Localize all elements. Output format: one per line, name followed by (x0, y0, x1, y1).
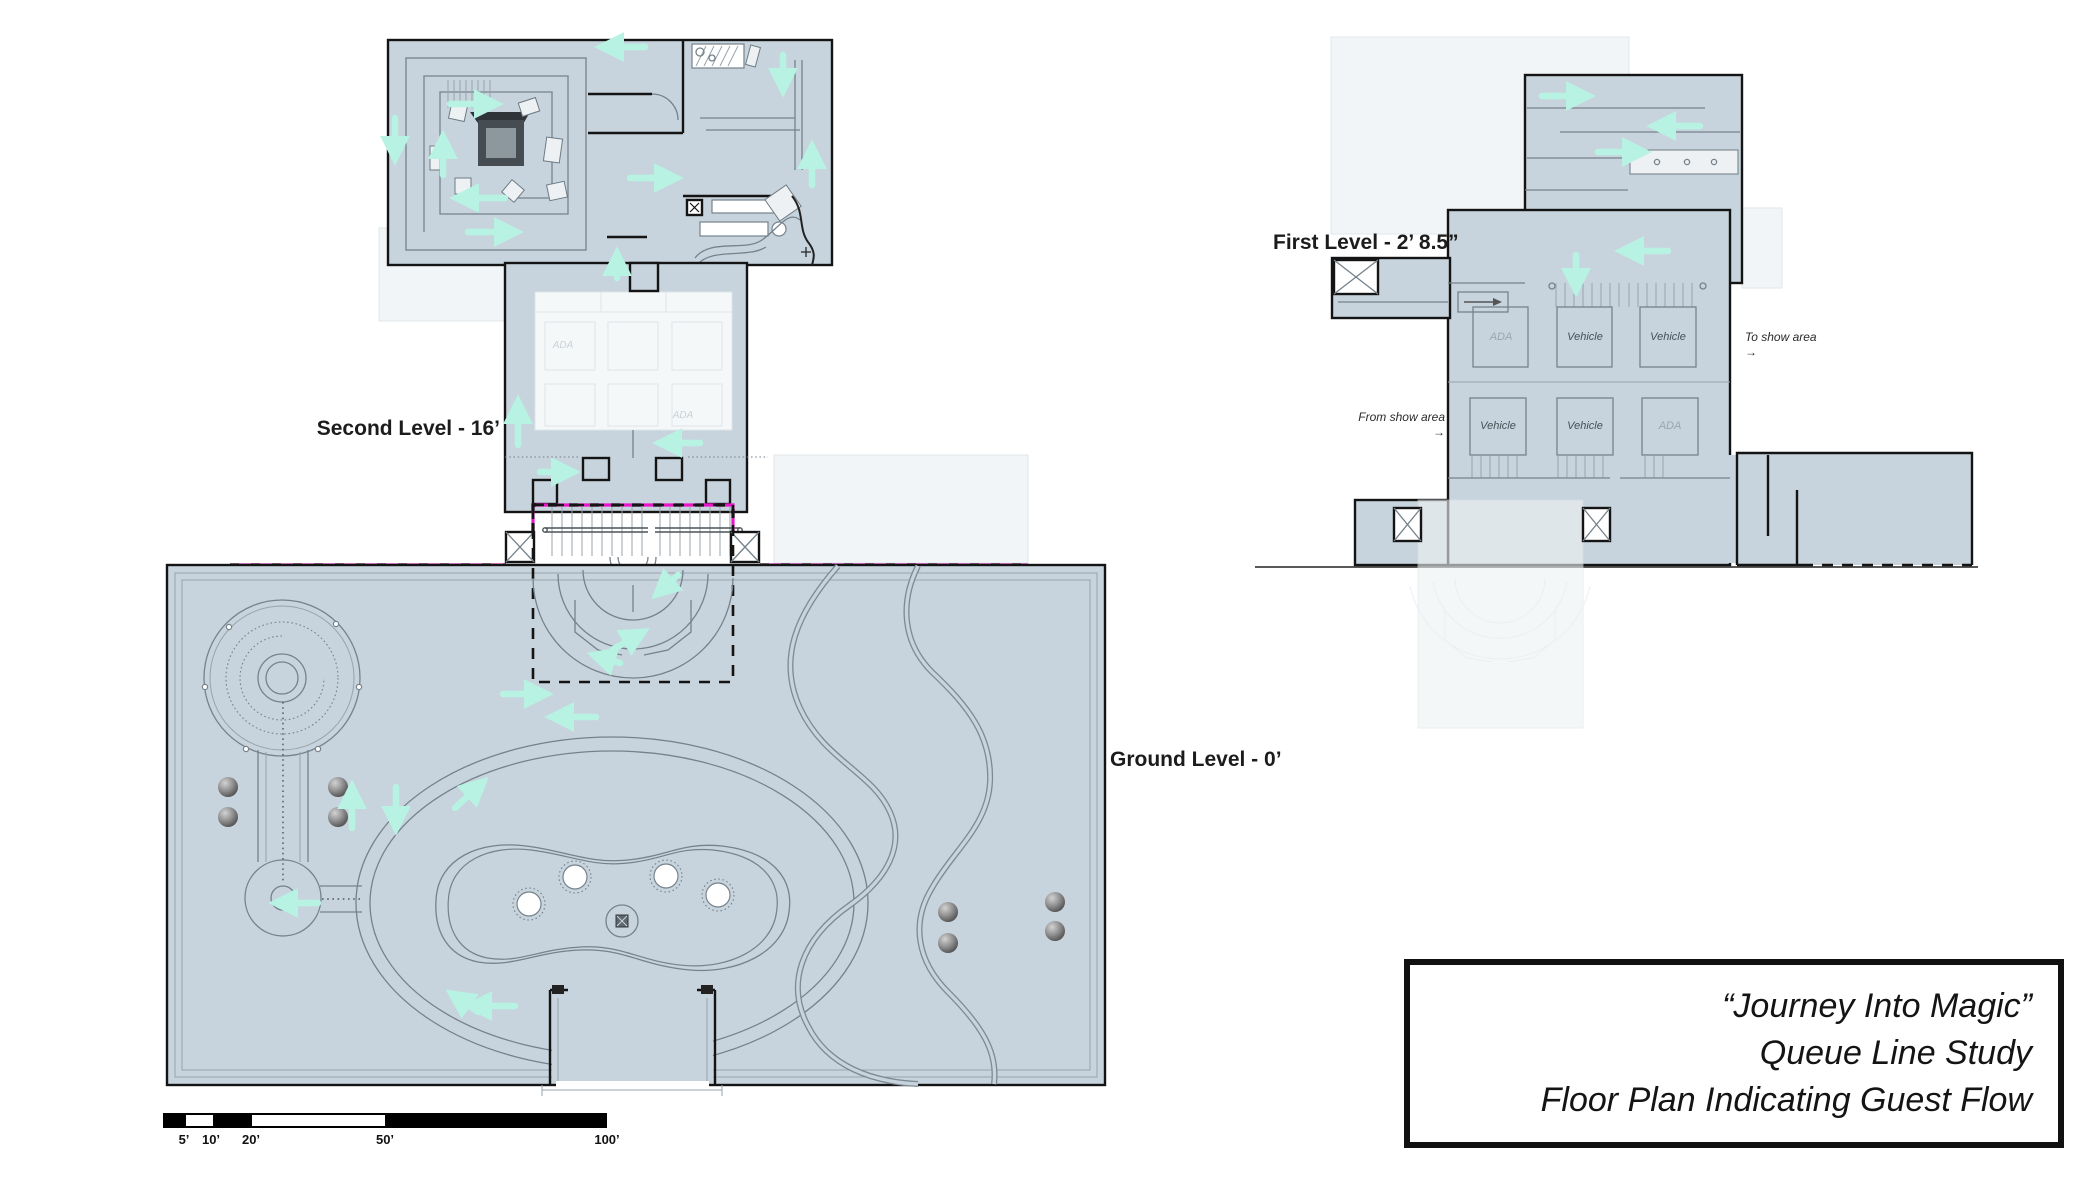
scale-tick: 20’ (242, 1132, 260, 1147)
ghost-bay-label: ADA (538, 340, 588, 351)
second-level-plan (230, 40, 1028, 580)
scale-tick: 10’ (202, 1132, 220, 1147)
title-line-1: “Journey Into Magic” (1410, 983, 2058, 1030)
bay-label: Vehicle (1636, 331, 1700, 343)
ground-level-plan (167, 505, 1105, 1096)
from-show-area-label: From show area (1320, 410, 1445, 425)
first-level-label: First Level - 2’ 8.5” (1273, 231, 1459, 255)
bay-label: Vehicle (1553, 331, 1617, 343)
bay-label: Vehicle (1466, 420, 1530, 432)
title-block: “Journey Into Magic” Queue Line Study Fl… (1404, 959, 2064, 1148)
floor-plan-sheet: Second Level - 16’ First Level - 2’ 8.5”… (0, 0, 2100, 1181)
scale-tick: 100’ (594, 1132, 619, 1147)
door-vestibule (630, 263, 658, 291)
from-show-area-arrow: → (1320, 425, 1445, 440)
to-show-area-arrow: → (1745, 345, 1865, 360)
entry-corridor (542, 985, 722, 1096)
ghost-footprint (774, 455, 1028, 563)
bay-label: ADA (1469, 331, 1533, 343)
second-level-label: Second Level - 16’ (300, 417, 500, 441)
ground-level-label: Ground Level - 0’ (1110, 748, 1282, 772)
scale-bar (163, 1113, 607, 1128)
to-show-area-label: To show area (1745, 330, 1865, 345)
first-level-plan (1255, 37, 1978, 728)
title-line-2: Queue Line Study (1410, 1030, 2058, 1077)
scale-tick: 50’ (376, 1132, 394, 1147)
bedroom-props (692, 44, 760, 68)
bay-label: ADA (1638, 420, 1702, 432)
ghost-footprint (1742, 208, 1782, 288)
ghost-load-area (1410, 500, 1590, 728)
bay-label: Vehicle (1553, 420, 1617, 432)
title-line-3: Floor Plan Indicating Guest Flow (1410, 1077, 2058, 1124)
ghost-bay-label: ADA (658, 410, 708, 421)
scale-tick: 5’ (179, 1132, 190, 1147)
